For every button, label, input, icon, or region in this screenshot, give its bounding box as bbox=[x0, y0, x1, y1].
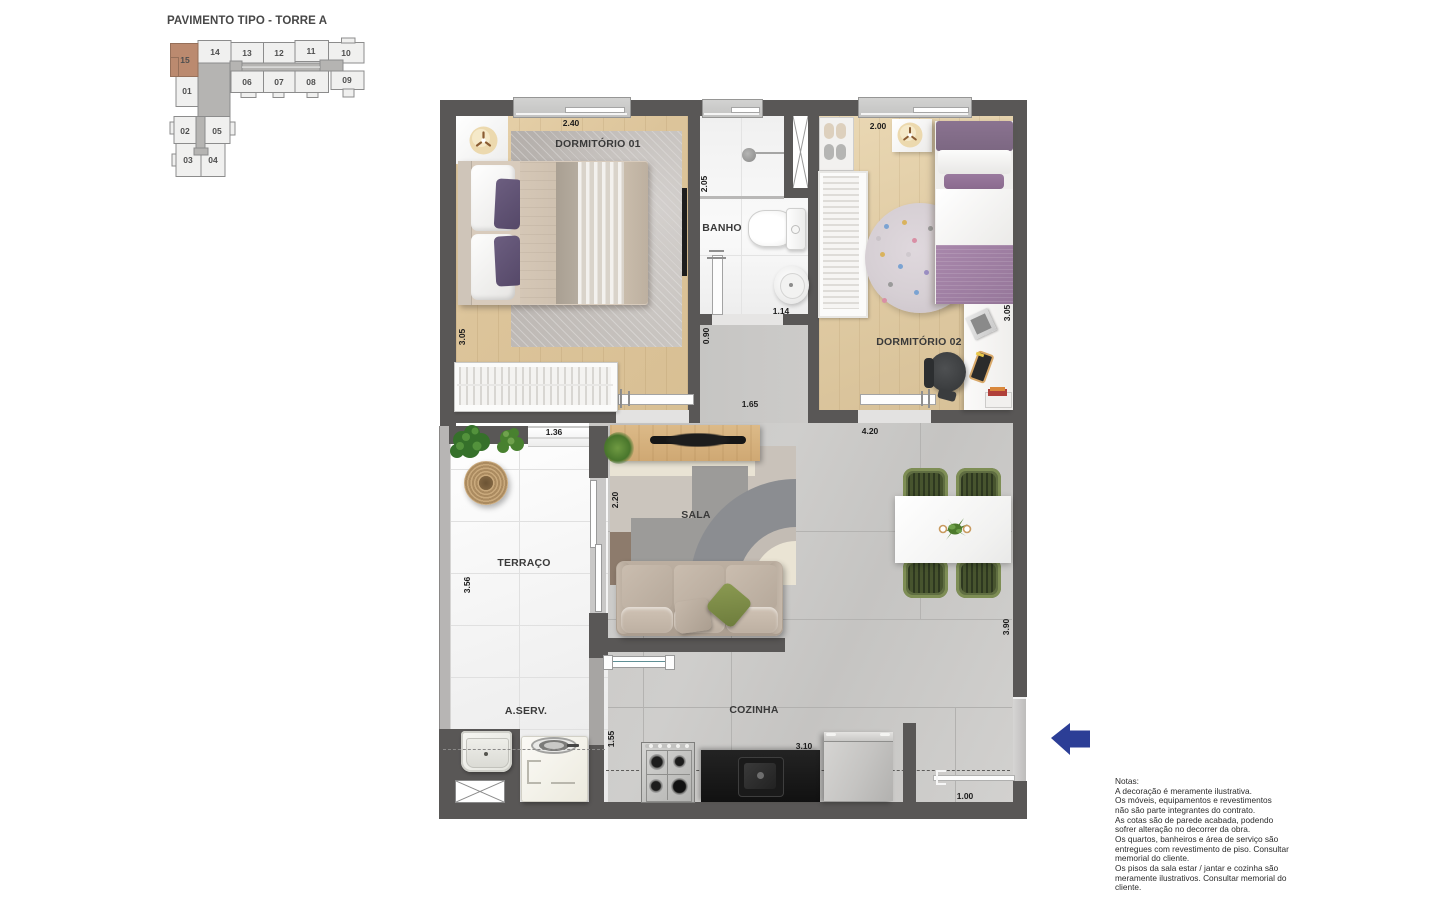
svg-text:14: 14 bbox=[210, 47, 220, 57]
svg-text:01: 01 bbox=[182, 86, 192, 96]
svg-text:02: 02 bbox=[180, 126, 190, 136]
svg-text:15: 15 bbox=[180, 55, 190, 65]
svg-text:11: 11 bbox=[307, 46, 316, 56]
svg-text:05: 05 bbox=[212, 126, 222, 136]
svg-text:03: 03 bbox=[183, 155, 193, 165]
svg-text:08: 08 bbox=[306, 77, 316, 87]
svg-text:04: 04 bbox=[208, 155, 218, 165]
svg-text:12: 12 bbox=[274, 48, 284, 58]
svg-text:13: 13 bbox=[242, 48, 252, 58]
svg-text:07: 07 bbox=[274, 77, 284, 87]
svg-text:06: 06 bbox=[242, 77, 252, 87]
svg-text:09: 09 bbox=[342, 75, 352, 85]
svg-text:10: 10 bbox=[341, 48, 351, 58]
